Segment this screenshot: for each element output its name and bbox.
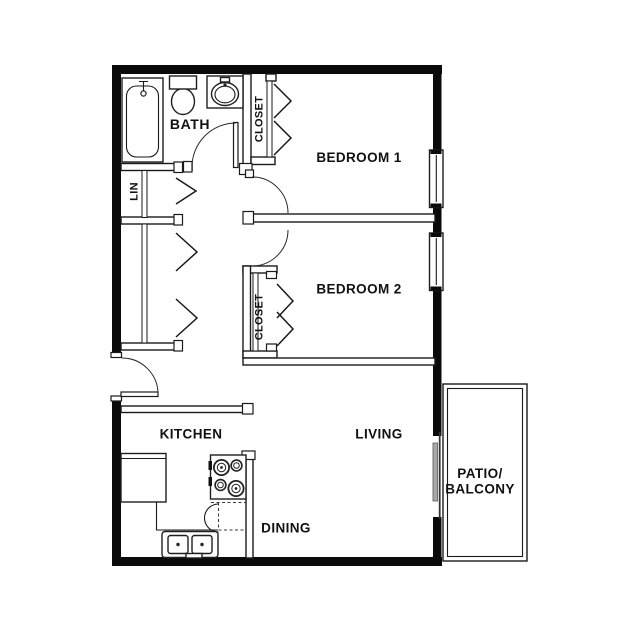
linen-bottom-wall [121,217,182,224]
kitchen-counter-wall [121,406,247,413]
toilet-icon [170,76,197,115]
swing-door-icon [121,358,158,397]
hall-closet-bottom-wall [121,343,182,350]
kitchen-sink-icon [162,532,218,559]
sliding-door-icon [433,432,441,519]
closet1-top-post [266,74,276,81]
label-dining: DINING [261,521,311,536]
closet1-bottom-wall [251,157,275,165]
bathroom-sink-icon [207,76,243,108]
label-kitchen: KITCHEN [160,427,223,442]
bath-east-wall [243,74,251,170]
label-linen: LIN [129,182,141,201]
wall-bottom [112,557,442,566]
label-closet-bedroom2: CLOSET [254,294,266,340]
wall-caps [111,162,277,460]
label-bedroom1: BEDROOM 1 [316,150,401,165]
label-living: LIVING [355,427,402,442]
kitchen-counter-edge [157,502,219,530]
dishwasher-icon [205,503,247,533]
dining-wall [246,453,253,558]
swing-door-icon [252,177,288,213]
stove-icon [209,455,247,499]
label-patio-line1: PATIO/ [457,466,502,481]
bifold-door-icon [176,233,197,337]
window-icon [430,150,444,208]
wall-right-seg4 [433,519,442,566]
bathtub-icon [122,78,163,162]
wall-left-upper [112,65,121,357]
bifold-door-icon [274,84,291,155]
window-icon [430,233,444,291]
bedroom-divider-wall [247,214,435,222]
swing-door-icon [252,230,288,266]
wall-top [112,65,442,74]
closet2-west-wall [243,266,251,358]
label-bedroom2: BEDROOM 2 [316,282,401,297]
wall-right-seg1 [433,65,442,150]
refrigerator-icon [121,454,166,503]
bifold-door-icon [277,284,293,346]
label-patio-line2: BALCONY [445,482,515,497]
bifold-door-icon [176,178,196,204]
closet2-bottom-wall [243,351,277,358]
bedroom2-south-wall [243,358,435,365]
label-closet-bedroom1: CLOSET [254,96,266,142]
label-bath: BATH [170,116,210,132]
floor-plan-page: BATH BEDROOM 1 BEDROOM 2 KITCHEN LIVING … [0,0,640,640]
floor-plan-drawing: BATH BEDROOM 1 BEDROOM 2 KITCHEN LIVING … [0,0,640,640]
wall-left-lower [112,397,121,566]
